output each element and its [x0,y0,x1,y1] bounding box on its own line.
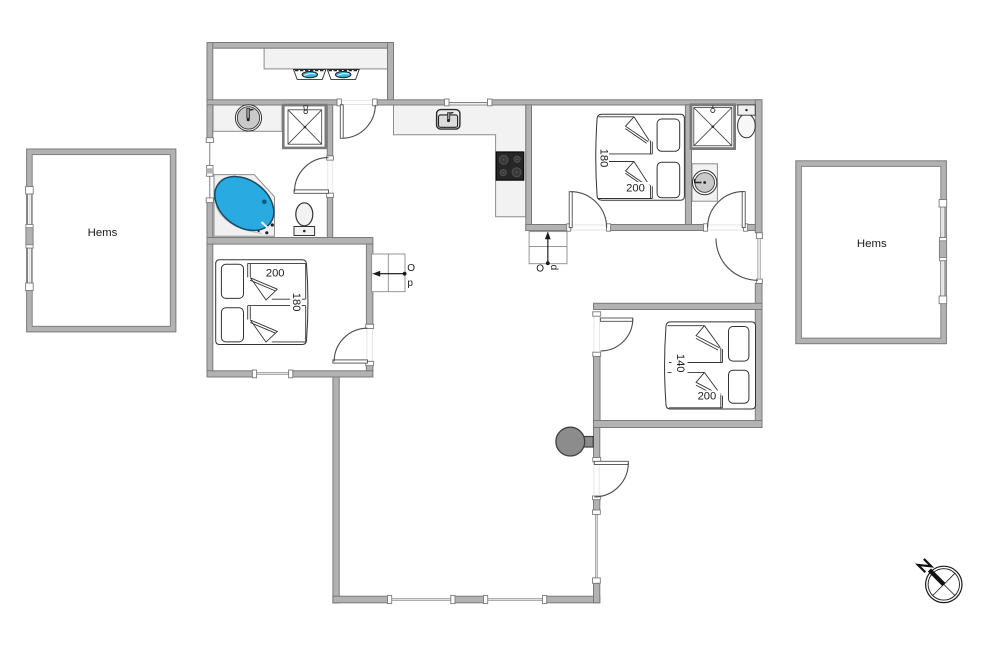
svg-text:140: 140 [674,354,686,373]
svg-text:180: 180 [598,149,610,168]
svg-text:200: 200 [626,183,645,195]
svg-text:O: O [536,263,544,274]
svg-text:200: 200 [698,391,717,403]
svg-text:p: p [548,264,559,270]
svg-text:200: 200 [266,267,285,279]
svg-text:Hems: Hems [88,227,118,239]
svg-text:p: p [407,278,413,289]
svg-text:180: 180 [290,293,302,312]
svg-text:O: O [407,263,415,274]
svg-text:Hems: Hems [857,238,887,250]
